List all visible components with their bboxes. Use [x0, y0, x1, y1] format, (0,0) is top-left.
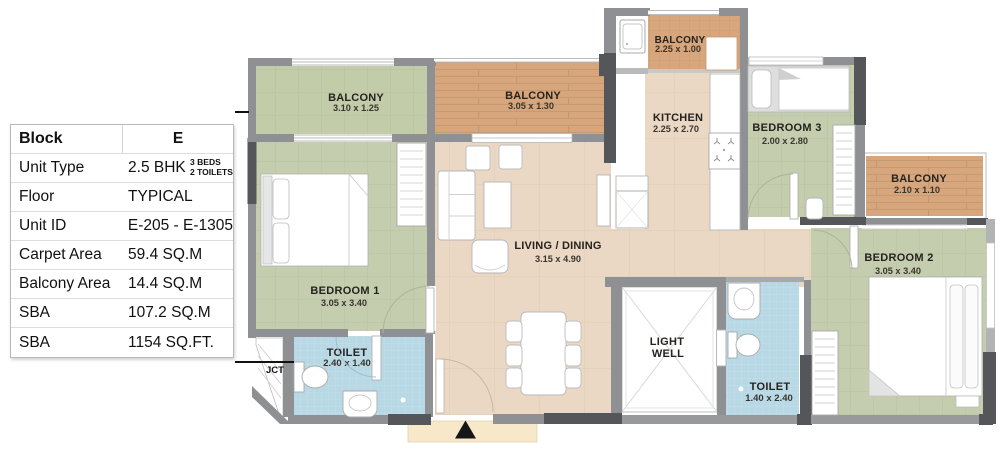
svg-text:3.10 x 1.25: 3.10 x 1.25 [333, 103, 379, 113]
svg-text:JCT: JCT [266, 365, 284, 376]
svg-text:2.00 x 2.80: 2.00 x 2.80 [762, 136, 808, 146]
svg-text:TOILET: TOILET [750, 381, 791, 393]
svg-text:3.15 x 4.90: 3.15 x 4.90 [535, 254, 581, 264]
svg-text:LIVING / DINING: LIVING / DINING [514, 240, 601, 252]
svg-text:3.05 x 1.30: 3.05 x 1.30 [508, 101, 554, 111]
svg-text:2.25 x 2.70: 2.25 x 2.70 [653, 124, 699, 134]
svg-text:3.05 x 3.40: 3.05 x 3.40 [321, 298, 367, 308]
svg-text:LIGHT: LIGHT [650, 336, 685, 348]
svg-text:BALCONY: BALCONY [891, 173, 947, 185]
svg-text:2.40 x 1.40: 2.40 x 1.40 [323, 358, 371, 369]
svg-text:3.05 x 3.40: 3.05 x 3.40 [875, 266, 921, 276]
svg-text:2.10 x 1.10: 2.10 x 1.10 [894, 185, 940, 195]
svg-text:2.25 x 1.00: 2.25 x 1.00 [655, 44, 701, 54]
svg-text:BEDROOM 3: BEDROOM 3 [752, 122, 821, 134]
svg-text:BEDROOM 1: BEDROOM 1 [310, 285, 379, 297]
svg-text:BEDROOM 2: BEDROOM 2 [864, 252, 933, 264]
svg-text:1.40 x 2.40: 1.40 x 2.40 [745, 393, 793, 404]
svg-text:WELL: WELL [652, 348, 684, 360]
svg-text:KITCHEN: KITCHEN [653, 112, 703, 124]
